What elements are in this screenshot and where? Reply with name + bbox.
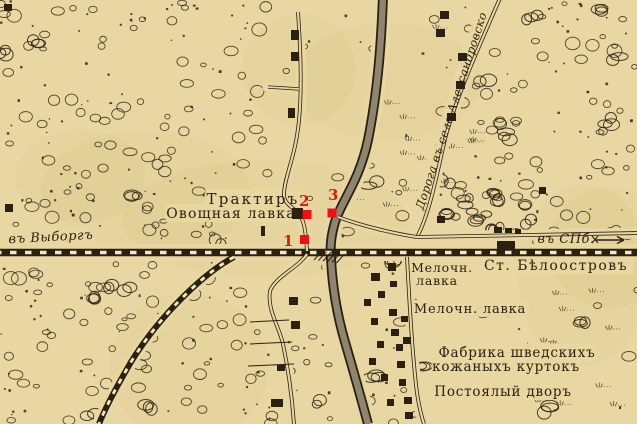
grass-dot xyxy=(603,291,604,292)
dot xyxy=(144,17,146,19)
building xyxy=(371,273,380,281)
dot xyxy=(84,294,85,295)
dot xyxy=(344,14,347,17)
dot xyxy=(211,151,213,153)
label-melochn-lavka-1-line2: лавка xyxy=(416,273,458,288)
building xyxy=(405,412,413,419)
building xyxy=(436,29,445,37)
marker-square-2 xyxy=(303,210,312,219)
dot xyxy=(9,0,12,3)
dot xyxy=(615,153,617,155)
grass-dot xyxy=(548,341,549,342)
dot xyxy=(489,178,492,180)
dot xyxy=(562,25,564,27)
dot xyxy=(246,386,248,388)
dot xyxy=(69,186,71,188)
building xyxy=(291,321,300,329)
grass-dot xyxy=(360,199,361,200)
dot xyxy=(20,66,22,68)
building xyxy=(389,309,397,316)
dot xyxy=(130,19,133,22)
dot xyxy=(50,190,53,193)
dot xyxy=(38,279,40,281)
dot xyxy=(87,100,89,102)
dot xyxy=(8,389,11,392)
grass-dot xyxy=(476,142,477,143)
dot xyxy=(556,21,559,24)
grass-dot xyxy=(607,386,608,387)
dot xyxy=(243,409,245,411)
grass-dot xyxy=(395,103,396,104)
dot xyxy=(60,173,62,175)
grass-dot xyxy=(408,117,409,118)
grass-dot xyxy=(616,328,617,329)
dot xyxy=(605,166,608,169)
dot xyxy=(120,24,122,26)
dot xyxy=(328,391,331,394)
grass-dot xyxy=(482,142,483,143)
dot xyxy=(372,393,375,396)
building xyxy=(440,11,449,19)
dot xyxy=(225,237,227,239)
grass-dot xyxy=(573,310,574,311)
dot xyxy=(245,305,248,308)
building xyxy=(404,397,412,404)
dot xyxy=(579,176,582,179)
dot xyxy=(210,358,212,360)
dot xyxy=(183,35,185,37)
dot xyxy=(47,328,49,330)
historical-map-canvas: ТрактиръОвощная лавкавъ Выборгъвъ СПб.Ст… xyxy=(0,0,637,424)
grass-dot xyxy=(459,147,460,148)
dot xyxy=(181,362,184,365)
dot xyxy=(193,5,196,7)
dot xyxy=(128,168,130,170)
dot xyxy=(4,388,6,390)
dot xyxy=(626,192,628,194)
dot xyxy=(450,59,452,61)
grass-dot xyxy=(357,199,358,200)
grass-dot xyxy=(560,294,561,295)
building xyxy=(399,379,406,386)
marker-digit-3: 3 xyxy=(328,186,338,204)
dot xyxy=(606,17,608,19)
grass-dot xyxy=(570,310,571,311)
grass-dot xyxy=(410,190,411,191)
dot xyxy=(229,287,232,289)
dot xyxy=(44,84,46,86)
dot xyxy=(70,210,72,212)
dot xyxy=(161,238,163,240)
grass-dot xyxy=(419,139,420,140)
dot xyxy=(25,290,28,293)
grass-dot xyxy=(610,386,611,387)
dot xyxy=(242,5,244,7)
dot xyxy=(268,407,270,409)
dot xyxy=(392,272,395,275)
grass-dot xyxy=(600,291,601,292)
grass-dot xyxy=(621,405,622,406)
grass-dot xyxy=(413,139,414,140)
dot xyxy=(144,191,145,192)
grass-dot xyxy=(416,139,417,140)
building xyxy=(291,52,299,61)
dot xyxy=(576,18,578,20)
building xyxy=(377,341,384,348)
dot xyxy=(80,370,83,372)
marker-digit-2: 2 xyxy=(299,192,309,210)
dot xyxy=(566,30,569,33)
dot xyxy=(3,268,6,270)
grass-dot xyxy=(479,142,480,143)
dot xyxy=(85,62,88,65)
label-to-spb-text: въ СПб. xyxy=(537,232,594,247)
grass-dot xyxy=(451,182,452,183)
grass-dot xyxy=(397,205,398,206)
grass-dot xyxy=(411,117,412,118)
building xyxy=(289,297,298,305)
dot xyxy=(92,199,95,202)
dot xyxy=(226,300,228,302)
dot xyxy=(464,6,466,8)
building xyxy=(403,337,411,344)
building xyxy=(271,399,283,407)
dot xyxy=(625,33,627,35)
building xyxy=(397,361,405,368)
dot xyxy=(446,67,448,69)
building xyxy=(494,227,502,233)
dot xyxy=(196,7,199,9)
dot xyxy=(40,315,42,317)
building xyxy=(4,4,12,11)
dot xyxy=(246,22,248,24)
dot xyxy=(269,417,271,419)
grass-dot xyxy=(411,153,412,154)
dot xyxy=(192,316,194,318)
dot xyxy=(30,305,33,308)
dot xyxy=(32,25,34,27)
dot xyxy=(121,93,123,95)
building xyxy=(539,187,546,194)
dot xyxy=(244,27,246,29)
label-to-spb: въ СПб. xyxy=(537,232,594,247)
dot xyxy=(203,194,205,196)
building xyxy=(371,318,378,325)
dot xyxy=(393,395,395,397)
dot xyxy=(554,409,556,411)
grass-dot xyxy=(391,205,392,206)
grass-dot xyxy=(481,132,482,133)
dot xyxy=(99,225,101,227)
dot xyxy=(630,119,633,122)
grass-dot xyxy=(398,103,399,104)
dot xyxy=(7,132,10,135)
dot xyxy=(267,354,270,357)
marker-digit-1: 1 xyxy=(283,232,293,250)
grass-dot xyxy=(363,199,364,200)
dot xyxy=(393,347,395,349)
dot xyxy=(507,73,509,75)
label-fabrika-line2-text: кожаныхъ куртокъ xyxy=(432,359,580,375)
building xyxy=(381,374,388,381)
dot xyxy=(322,344,324,346)
dot xyxy=(18,99,20,102)
dot xyxy=(536,210,538,213)
dot xyxy=(621,209,622,210)
map-screenshot: ТрактиръОвощная лавкавъ Выборгъвъ СПб.Ст… xyxy=(0,0,637,424)
building xyxy=(390,281,397,287)
building xyxy=(261,226,265,236)
dot xyxy=(500,180,502,182)
building xyxy=(497,241,515,249)
dot xyxy=(166,8,168,10)
dot xyxy=(244,412,246,414)
building xyxy=(401,316,408,322)
building xyxy=(515,229,521,234)
grass-dot xyxy=(597,291,598,292)
dot xyxy=(10,125,12,127)
dot xyxy=(72,214,75,217)
building xyxy=(391,329,399,336)
dot xyxy=(21,199,23,201)
grass-dot xyxy=(454,182,455,183)
dot xyxy=(192,339,195,342)
dot xyxy=(231,14,233,16)
dot xyxy=(170,180,172,182)
dot xyxy=(153,193,156,195)
dot xyxy=(219,70,222,73)
dot xyxy=(477,176,480,179)
dot xyxy=(190,106,193,109)
dot xyxy=(171,4,173,6)
dot xyxy=(303,347,305,349)
dot xyxy=(42,157,44,159)
label-melochn-lavka-1-line2-text: лавка xyxy=(416,273,458,288)
dot xyxy=(240,38,242,40)
dot xyxy=(11,414,12,415)
grass-dot xyxy=(477,140,478,141)
dot xyxy=(308,40,311,43)
label-melochn-lavka-2-text: Мелочн. лавка xyxy=(414,302,526,317)
dot xyxy=(156,137,158,139)
grass-dot xyxy=(448,182,449,183)
dot xyxy=(215,172,217,174)
grass-dot xyxy=(392,103,393,104)
building xyxy=(369,358,376,365)
dot xyxy=(579,3,582,5)
grass-dot xyxy=(545,401,546,402)
dot xyxy=(518,328,520,330)
dot xyxy=(130,13,132,15)
dot xyxy=(86,13,88,15)
grass-dot xyxy=(551,341,552,342)
dot xyxy=(212,68,214,70)
dot xyxy=(422,52,425,54)
grass-dot xyxy=(414,117,415,118)
grass-dot xyxy=(484,132,485,133)
dot xyxy=(144,224,146,226)
marker-square-3 xyxy=(328,209,337,218)
building xyxy=(437,216,445,223)
building xyxy=(291,30,299,40)
grass-dot xyxy=(413,190,414,191)
grass-dot xyxy=(565,404,566,405)
building xyxy=(5,204,13,212)
dot xyxy=(0,21,3,24)
dot xyxy=(48,142,50,144)
grass-dot xyxy=(483,140,484,141)
dot xyxy=(465,190,467,192)
dot xyxy=(190,182,192,184)
dot xyxy=(342,235,345,238)
dot xyxy=(244,342,246,344)
grass-dot xyxy=(443,28,444,29)
grass-dot xyxy=(480,140,481,141)
building xyxy=(288,108,295,118)
dot xyxy=(498,89,501,92)
dot xyxy=(534,219,537,221)
dot xyxy=(167,410,169,412)
dot xyxy=(33,318,35,320)
dot xyxy=(230,113,232,115)
grass-dot xyxy=(618,405,619,406)
dot xyxy=(548,8,550,10)
dot xyxy=(184,177,186,179)
grass-dot xyxy=(571,404,572,405)
building xyxy=(396,344,403,351)
dot xyxy=(391,191,393,193)
dot xyxy=(257,371,260,374)
marker-square-1 xyxy=(300,235,309,244)
dot xyxy=(606,151,608,153)
dot xyxy=(109,102,112,104)
dot xyxy=(474,155,476,157)
dot xyxy=(249,98,252,101)
dot xyxy=(139,294,141,297)
grass-dot xyxy=(542,401,543,402)
dot xyxy=(590,208,592,210)
dot xyxy=(202,225,205,228)
grass-dot xyxy=(425,159,426,160)
label-station-beloostrov: Ст. Бѣлоостровъ xyxy=(484,258,628,274)
dot xyxy=(0,333,2,335)
dot xyxy=(209,297,211,299)
dot xyxy=(553,131,555,133)
dot xyxy=(119,331,120,332)
grass-dot xyxy=(478,132,479,133)
grass-dot xyxy=(440,28,441,29)
dot xyxy=(256,403,258,405)
grass-dot xyxy=(619,328,620,329)
grass-dot xyxy=(548,401,549,402)
building xyxy=(364,299,371,306)
dot xyxy=(386,328,388,331)
dot xyxy=(440,194,442,196)
grass-dot xyxy=(567,310,568,311)
building xyxy=(378,291,385,298)
dot xyxy=(586,91,589,93)
building xyxy=(388,263,396,271)
dot xyxy=(171,39,172,40)
grass-dot xyxy=(566,294,567,295)
label-melochn-lavka-2: Мелочн. лавка xyxy=(414,302,526,317)
grass-dot xyxy=(613,328,614,329)
dot xyxy=(107,73,110,76)
dot xyxy=(405,134,407,137)
dot xyxy=(360,41,362,43)
dot xyxy=(605,82,608,85)
dot xyxy=(203,118,205,120)
grass-dot xyxy=(394,205,395,206)
grass-dot xyxy=(563,294,564,295)
grass-dot xyxy=(462,147,463,148)
dot xyxy=(74,172,77,175)
dot xyxy=(12,410,15,413)
label-fabrika-line2: кожаныхъ куртокъ xyxy=(432,359,580,375)
dot xyxy=(548,62,549,63)
label-postoyaly-dvor-text: Постоялый дворъ xyxy=(434,384,571,400)
dot xyxy=(587,136,589,138)
dot xyxy=(385,382,388,384)
dot xyxy=(557,112,559,114)
dot xyxy=(81,104,82,105)
building xyxy=(277,365,285,371)
dot xyxy=(619,406,621,409)
dot xyxy=(61,120,63,122)
grass-dot xyxy=(554,341,555,342)
dot xyxy=(555,70,557,72)
grass-dot xyxy=(446,28,447,29)
grass-dot xyxy=(408,153,409,154)
dot xyxy=(93,374,95,376)
dot xyxy=(579,131,581,133)
grass-dot xyxy=(456,147,457,148)
grass-dot xyxy=(414,153,415,154)
dot xyxy=(46,132,48,134)
dot xyxy=(518,173,520,175)
label-station-beloostrov-text: Ст. Бѣлоостровъ xyxy=(484,258,628,274)
dot xyxy=(54,199,56,201)
grass-dot xyxy=(604,386,605,387)
grass-dot xyxy=(624,405,625,406)
building xyxy=(387,399,394,406)
dot xyxy=(551,7,553,9)
dot xyxy=(77,187,80,190)
building xyxy=(505,228,512,233)
label-postoyaly-dvor: Постоялый дворъ xyxy=(434,384,571,400)
dot xyxy=(80,297,83,300)
dot xyxy=(49,118,51,120)
dot xyxy=(24,410,27,413)
dot xyxy=(8,373,10,375)
dot xyxy=(78,30,80,32)
dot xyxy=(34,300,36,302)
label-ovoshchnaya-lavka-text: Овощная лавка xyxy=(166,206,296,222)
dot xyxy=(233,163,235,166)
grass-dot xyxy=(568,404,569,405)
label-ovoshchnaya-lavka: Овощная лавка xyxy=(166,206,296,222)
dot xyxy=(563,62,565,64)
